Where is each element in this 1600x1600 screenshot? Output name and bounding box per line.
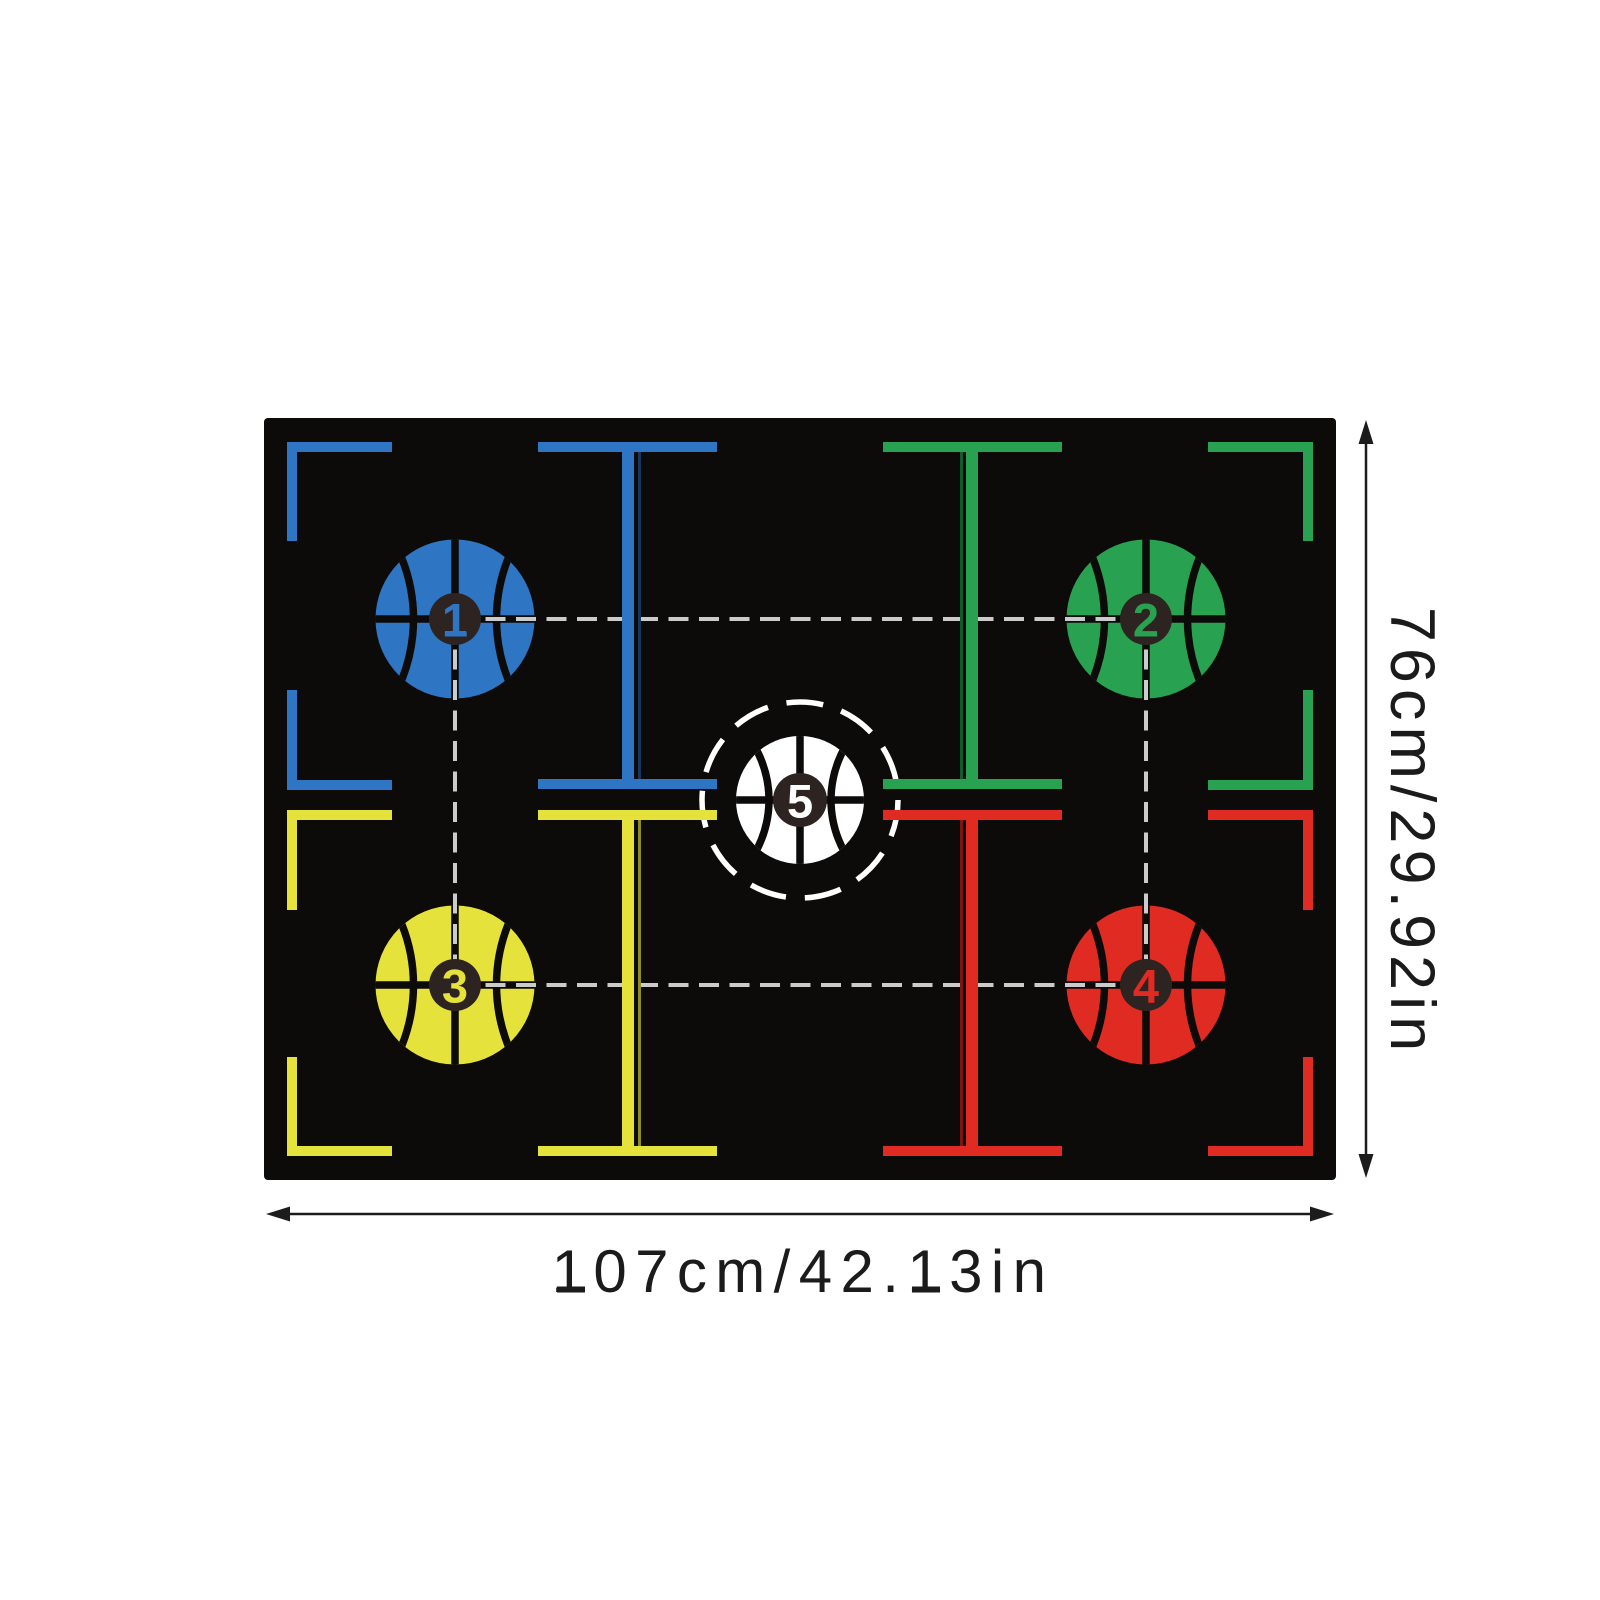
svg-text:107cm/42.13in: 107cm/42.13in [552, 1238, 1055, 1305]
svg-text:3: 3 [442, 960, 468, 1013]
svg-text:4: 4 [1133, 960, 1159, 1013]
svg-text:76cm/29.92in: 76cm/29.92in [1377, 607, 1447, 1057]
svg-text:1: 1 [442, 594, 468, 647]
svg-text:5: 5 [787, 775, 813, 828]
svg-text:2: 2 [1133, 594, 1159, 647]
